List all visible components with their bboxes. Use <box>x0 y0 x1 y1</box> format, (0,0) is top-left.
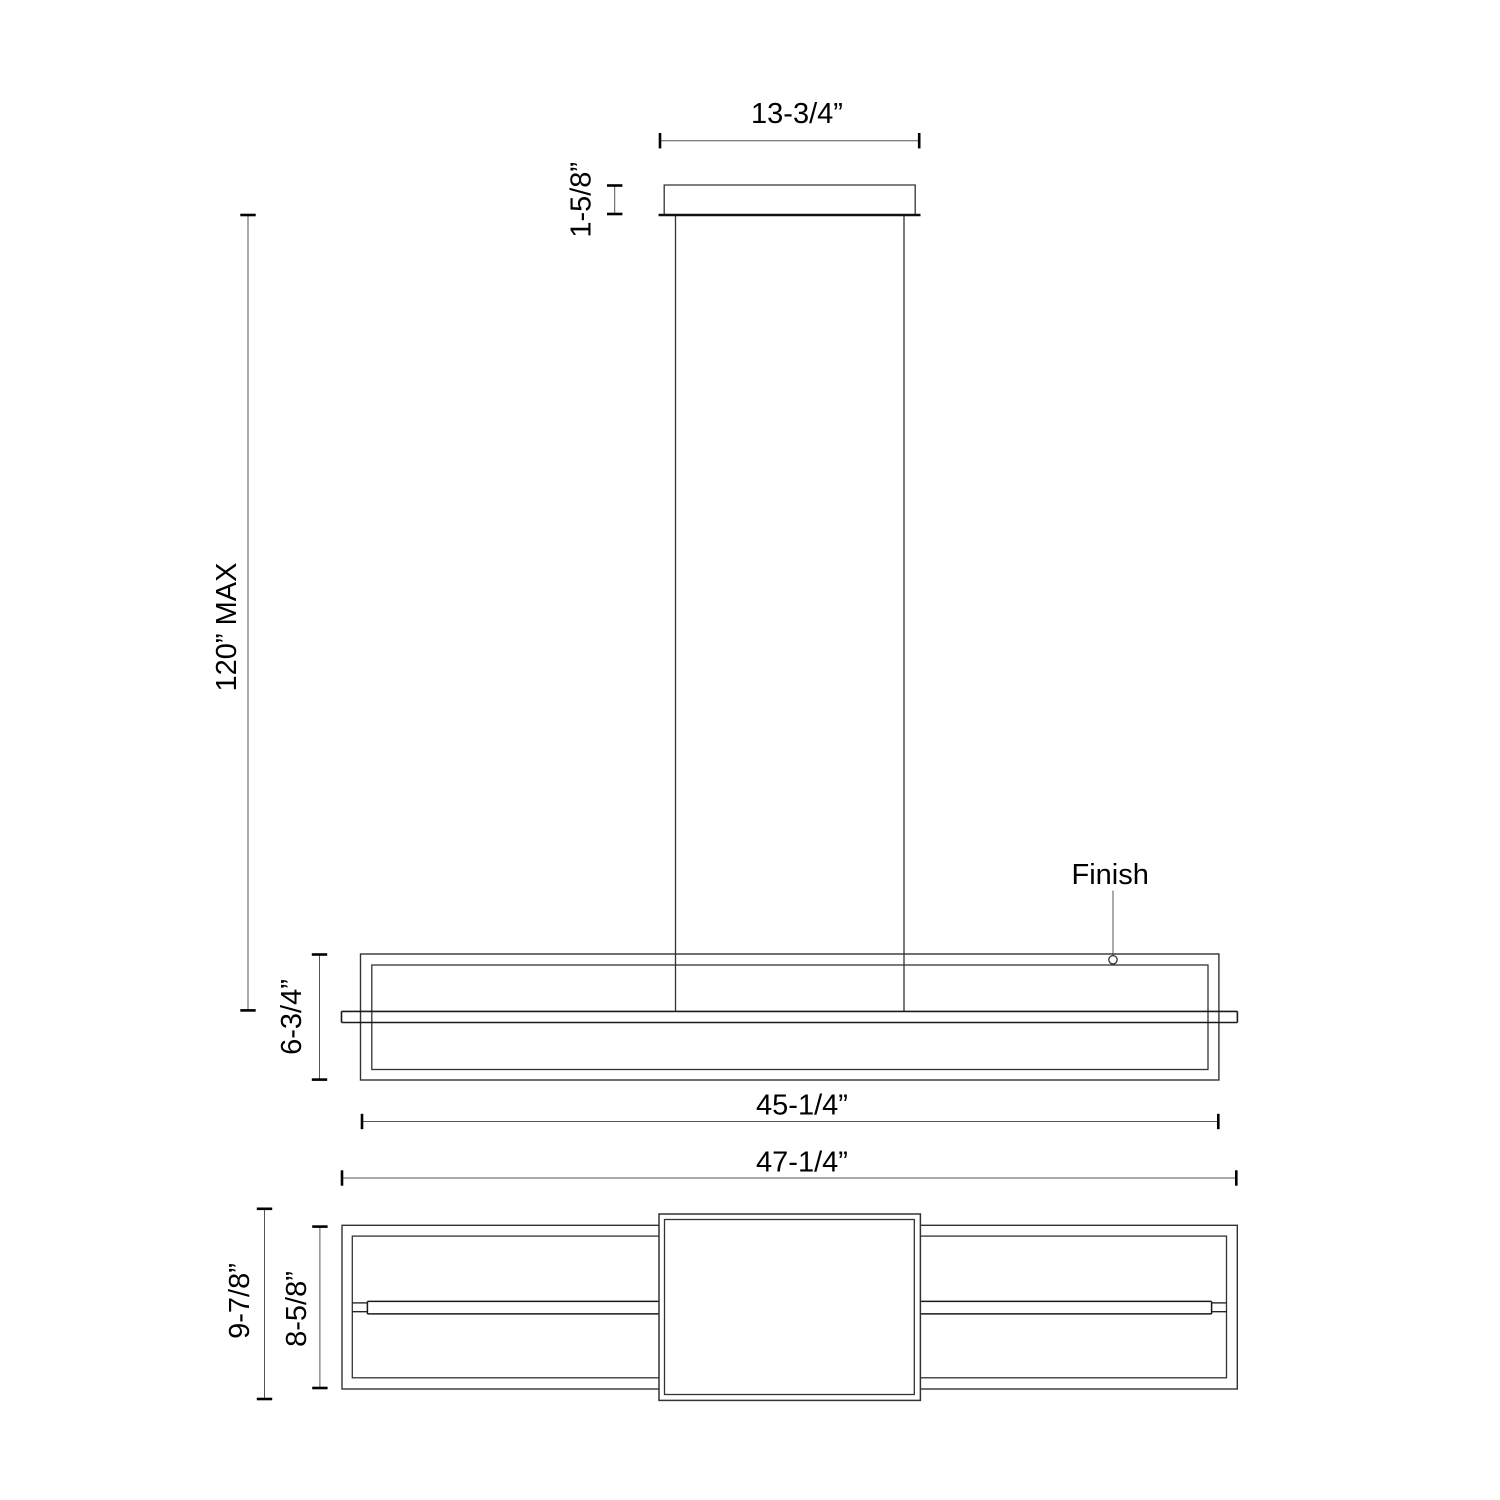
svg-text:13-3/4”: 13-3/4” <box>751 98 843 130</box>
svg-text:120” MAX: 120” MAX <box>211 563 243 692</box>
svg-text:6-3/4”: 6-3/4” <box>276 979 308 1055</box>
svg-text:1-5/8”: 1-5/8” <box>566 162 598 238</box>
svg-text:47-1/4”: 47-1/4” <box>756 1147 848 1179</box>
svg-text:8-5/8”: 8-5/8” <box>281 1271 313 1347</box>
svg-text:Finish: Finish <box>1072 859 1149 891</box>
svg-text:45-1/4”: 45-1/4” <box>756 1090 848 1122</box>
svg-text:9-7/8”: 9-7/8” <box>224 1263 256 1339</box>
